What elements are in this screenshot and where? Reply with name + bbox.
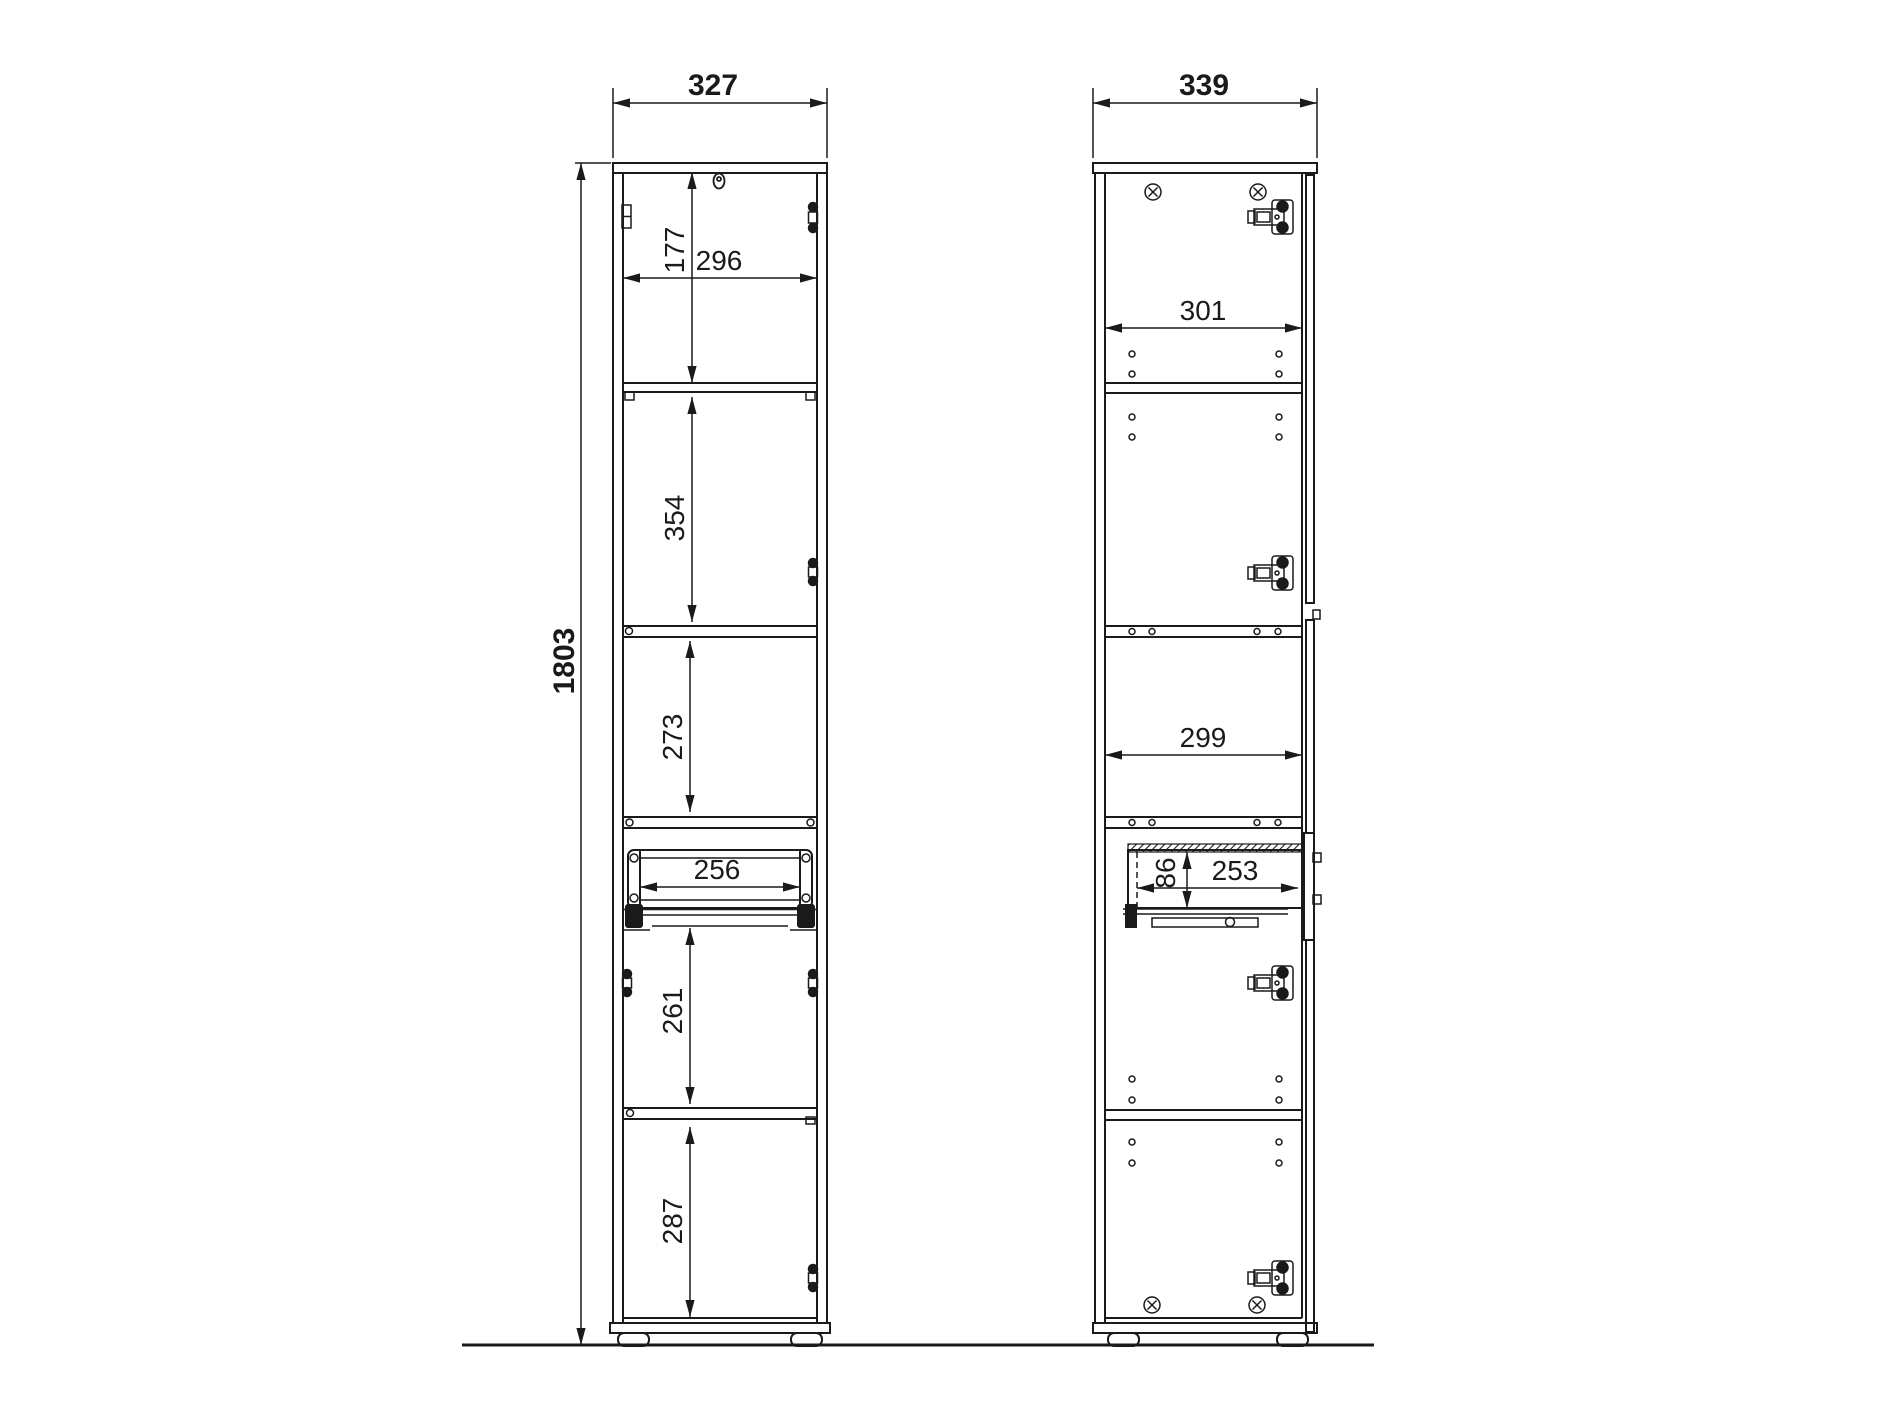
front-right-wall xyxy=(817,173,827,1323)
dimension-label: 1803 xyxy=(548,628,581,695)
side-shelf-1 xyxy=(1105,383,1302,393)
front-shelf-1 xyxy=(623,383,817,400)
dimension-label: 296 xyxy=(696,245,743,276)
dimension: 296 xyxy=(623,245,817,283)
front-shelf-4 xyxy=(623,1108,817,1124)
door-panel-section xyxy=(1304,175,1321,1332)
dimension-label: 256 xyxy=(694,854,741,885)
front-top-panel xyxy=(613,163,827,173)
screw-icon xyxy=(1250,184,1266,200)
slide-bracket-icon xyxy=(1126,905,1136,927)
technical-drawing-canvas: 3271803177296354273256261287339301299862… xyxy=(0,0,1896,1422)
dimension-annotations: 3271803177296354273256261287339301299862… xyxy=(548,69,1317,1345)
hinge-plate-icon xyxy=(1248,966,1293,1000)
slide-bracket-icon xyxy=(626,905,642,927)
dimension-label: 339 xyxy=(1179,69,1229,102)
dimension-label: 273 xyxy=(657,714,688,761)
front-view xyxy=(610,163,830,1346)
dimension: 339 xyxy=(1093,69,1317,158)
dimension-label: 354 xyxy=(659,495,690,542)
screw-icon xyxy=(1144,1297,1160,1313)
dimension-label: 301 xyxy=(1180,295,1227,326)
dimension-label: 327 xyxy=(688,69,738,102)
dimension: 86 xyxy=(1150,852,1192,908)
keyhole-slot-icon xyxy=(714,174,725,189)
dimension: 256 xyxy=(640,854,800,892)
side-base-panel xyxy=(1093,1323,1317,1333)
hinge-plate-icon xyxy=(1248,556,1293,590)
shelf-pin-holes xyxy=(1129,351,1282,1166)
dimension-label: 299 xyxy=(1180,722,1227,753)
dimension-label: 287 xyxy=(657,1198,688,1245)
dimension-label: 177 xyxy=(659,227,690,274)
side-shelf-2 xyxy=(1105,626,1302,637)
dimension: 1803 xyxy=(548,163,611,1345)
dimension: 327 xyxy=(613,69,827,158)
screw-icon xyxy=(1145,184,1161,200)
screw-icon xyxy=(1249,1297,1265,1313)
dimension: 273 xyxy=(657,641,695,812)
hinge-plate-icon xyxy=(1248,1261,1293,1295)
front-shelf-3 xyxy=(623,817,817,828)
side-top-panel xyxy=(1093,163,1317,173)
cabinet-technical-drawing: 3271803177296354273256261287339301299862… xyxy=(0,0,1896,1422)
side-shelf-3 xyxy=(1105,817,1302,828)
hinge-plate-icon xyxy=(1248,200,1293,234)
front-base-panel xyxy=(610,1323,830,1333)
dimension-label: 86 xyxy=(1150,857,1181,888)
dimension-label: 261 xyxy=(657,988,688,1035)
dimension: 299 xyxy=(1105,722,1302,812)
slide-bracket-icon xyxy=(798,905,814,927)
front-left-wall xyxy=(613,173,623,1323)
dimension: 261 xyxy=(657,928,695,1104)
dimension: 354 xyxy=(659,397,697,622)
front-shelf-2 xyxy=(623,626,817,637)
dimension-label: 253 xyxy=(1212,855,1259,886)
side-back-wall xyxy=(1095,173,1105,1323)
dimension: 301 xyxy=(1105,295,1302,333)
dimension: 287 xyxy=(657,1127,695,1317)
drawer-front-section xyxy=(1304,833,1314,940)
side-shelf-4 xyxy=(1105,1110,1302,1120)
